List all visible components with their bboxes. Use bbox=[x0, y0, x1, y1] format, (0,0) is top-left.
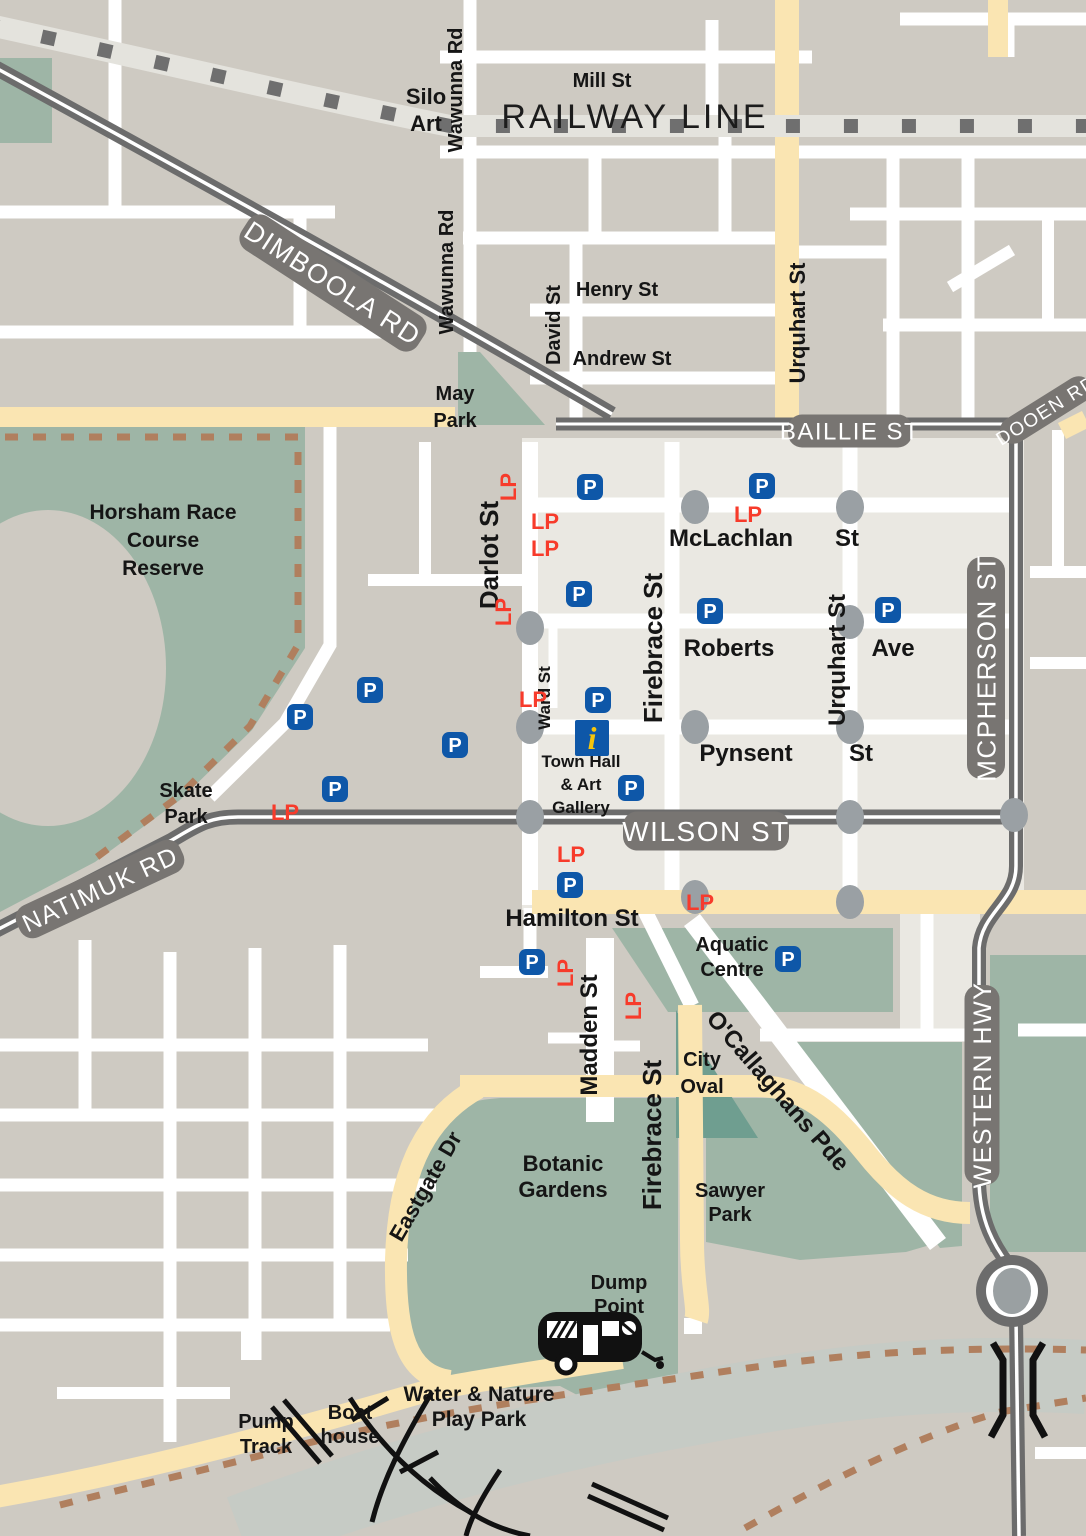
parking-icon-glyph: P bbox=[583, 477, 596, 499]
parking-icon: P bbox=[557, 872, 583, 898]
parking-icon-glyph: P bbox=[363, 680, 376, 702]
parking-icon: P bbox=[322, 776, 348, 802]
loading-zone-icon: LP bbox=[496, 473, 521, 501]
roundabout bbox=[976, 1255, 1048, 1327]
label-roberts-ave-suffix: Ave bbox=[871, 635, 914, 662]
parking-icon-glyph: P bbox=[591, 690, 604, 712]
parking-icon-glyph: P bbox=[781, 949, 794, 971]
parking-icon: P bbox=[357, 677, 383, 703]
loading-zone-icon: LP bbox=[621, 992, 646, 1020]
parking-icon-glyph: P bbox=[293, 707, 306, 729]
parking-icon-glyph: P bbox=[328, 779, 341, 801]
parking-icon: P bbox=[697, 598, 723, 624]
parking-icon: P bbox=[749, 473, 775, 499]
intersection-marker bbox=[836, 800, 864, 834]
intersection-marker bbox=[516, 611, 544, 645]
parking-icon: P bbox=[585, 687, 611, 713]
intersection-marker bbox=[836, 490, 864, 524]
label-firebrace-st-south: Firebrace St bbox=[637, 1060, 667, 1211]
label-madden-st: Madden St bbox=[576, 974, 603, 1095]
label-mclachlan: McLachlan bbox=[669, 525, 793, 552]
information-icon: i bbox=[575, 720, 609, 756]
loading-zone-icon: LP bbox=[531, 509, 559, 534]
intersection-marker bbox=[681, 710, 709, 744]
label-mclachlan-st-suffix: St bbox=[835, 525, 859, 552]
intersection-marker bbox=[1000, 798, 1028, 832]
parking-icon: P bbox=[775, 946, 801, 972]
label-roberts: Roberts bbox=[684, 635, 775, 662]
parking-icon-glyph: P bbox=[525, 952, 538, 974]
label-wawunna-rd-mid: Wawunna Rd bbox=[436, 210, 458, 335]
loading-zone-icon: LP bbox=[531, 536, 559, 561]
pill-wilson-st: WILSON ST bbox=[622, 812, 790, 851]
intersection-marker bbox=[681, 490, 709, 524]
parking-icon: P bbox=[519, 949, 545, 975]
label-hamilton-st: Hamilton St bbox=[505, 905, 638, 932]
pill-western-hwy: WESTERN HWY bbox=[965, 982, 1000, 1189]
label-botanic-gardens: BotanicGardens bbox=[518, 1151, 607, 1202]
loading-zone-icon: LP bbox=[686, 890, 714, 915]
parking-icon-glyph: P bbox=[624, 778, 637, 800]
parking-icon-glyph: P bbox=[448, 735, 461, 757]
pill-wilson-st-text: WILSON ST bbox=[622, 816, 790, 847]
label-urquhart-st-top: Urquhart St bbox=[785, 262, 810, 384]
label-railway-line: RAILWAY LINE bbox=[501, 98, 768, 136]
pill-baillie-st-text: BAILLIE ST bbox=[780, 419, 920, 446]
parking-icon-glyph: P bbox=[563, 875, 576, 897]
loading-zone-icon: LP bbox=[553, 959, 578, 987]
label-darlot-st: Darlot St bbox=[474, 500, 504, 609]
label-wawunna-rd-top: Wawunna Rd bbox=[445, 28, 467, 153]
parking-icon-glyph: P bbox=[703, 601, 716, 623]
pill-baillie-st: BAILLIE ST bbox=[780, 415, 920, 448]
label-urquhart-st-cbd: Urquhart St bbox=[824, 594, 851, 726]
label-andrew-st: Andrew St bbox=[573, 348, 672, 370]
intersection-marker bbox=[836, 885, 864, 919]
parking-icon-glyph: P bbox=[572, 584, 585, 606]
label-pynsent: Pynsent bbox=[699, 740, 792, 767]
label-henry-st: Henry St bbox=[576, 279, 659, 301]
parking-icon: P bbox=[577, 474, 603, 500]
parking-icon: P bbox=[566, 581, 592, 607]
pill-mcpherson-st: MCPHERSON ST bbox=[967, 554, 1005, 781]
parking-icon-glyph: P bbox=[755, 476, 768, 498]
intersection-marker bbox=[516, 800, 544, 834]
label-pynsent-st-suffix: St bbox=[849, 740, 873, 767]
label-david-st: David St bbox=[543, 285, 565, 365]
loading-zone-icon: LP bbox=[491, 598, 516, 626]
label-firebrace-st-cbd: Firebrace St bbox=[638, 573, 668, 724]
label-mill-st: Mill St bbox=[573, 70, 632, 92]
parking-icon: P bbox=[287, 704, 313, 730]
loading-zone-icon: LP bbox=[734, 502, 762, 527]
horsham-town-map: DIMBOOLA RDBAILLIE STDOOEN RDWILSON STNA… bbox=[0, 0, 1086, 1536]
parking-icon: P bbox=[875, 597, 901, 623]
pill-western-hwy-text: WESTERN HWY bbox=[969, 982, 997, 1189]
loading-zone-icon: LP bbox=[557, 842, 585, 867]
parking-icon-glyph: P bbox=[881, 600, 894, 622]
parking-icon: P bbox=[618, 775, 644, 801]
information-icon-glyph: i bbox=[588, 720, 597, 756]
pill-mcpherson-st-text: MCPHERSON ST bbox=[971, 554, 1001, 781]
parking-icon: P bbox=[442, 732, 468, 758]
loading-zone-icon: LP bbox=[271, 800, 299, 825]
loading-zone-icon: LP bbox=[519, 687, 547, 712]
green-east-of-western-hwy bbox=[990, 955, 1086, 1252]
